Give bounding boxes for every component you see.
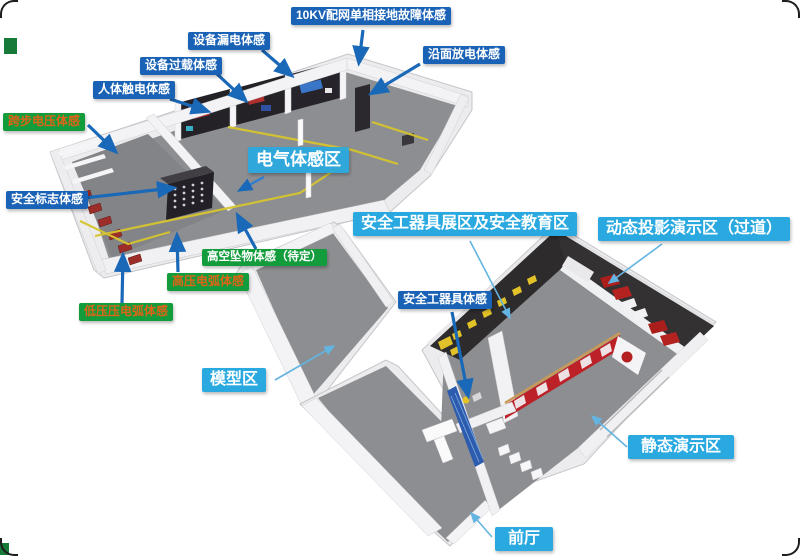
label-front-hall: 前厅 bbox=[495, 527, 553, 551]
label-hv-arc: 高压电弧体感 bbox=[167, 273, 249, 291]
label-human-electric-shock: 人体触电体感 bbox=[93, 81, 175, 99]
label-step-voltage: 跨步电压体感 bbox=[3, 113, 85, 131]
label-falling-object: 高空坠物体感（待定） bbox=[202, 249, 327, 266]
label-model-area: 模型区 bbox=[202, 368, 266, 392]
label-electrical-experience-zone: 电气体感区 bbox=[248, 147, 349, 173]
label-equipment-leakage: 设备漏电体感 bbox=[188, 32, 270, 50]
label-surface-discharge: 沿面放电体感 bbox=[423, 46, 505, 64]
floor-plan-diagram: 10KV配网单相接地故障体感 沿面放电体感 设备漏电体感 设备过载体感 人体触电… bbox=[0, 0, 800, 556]
label-tool-exhibition-education-zone: 安全工器具展区及安全教育区 bbox=[353, 212, 577, 236]
label-10kv-ground-fault: 10KV配网单相接地故障体感 bbox=[291, 7, 451, 25]
label-safety-sign: 安全标志体感 bbox=[6, 191, 88, 209]
label-lv-arc: 低压压电弧体感 bbox=[79, 303, 173, 321]
label-static-demo-zone: 静态演示区 bbox=[628, 435, 734, 459]
label-dynamic-projection-zone: 动态投影演示区（过道） bbox=[598, 217, 790, 241]
label-safety-tool-experience: 安全工器具体感 bbox=[398, 291, 492, 309]
lower-building bbox=[422, 224, 716, 516]
cropped-label-fragment-top-left bbox=[4, 38, 17, 54]
label-equipment-overload: 设备过载体感 bbox=[140, 57, 222, 75]
